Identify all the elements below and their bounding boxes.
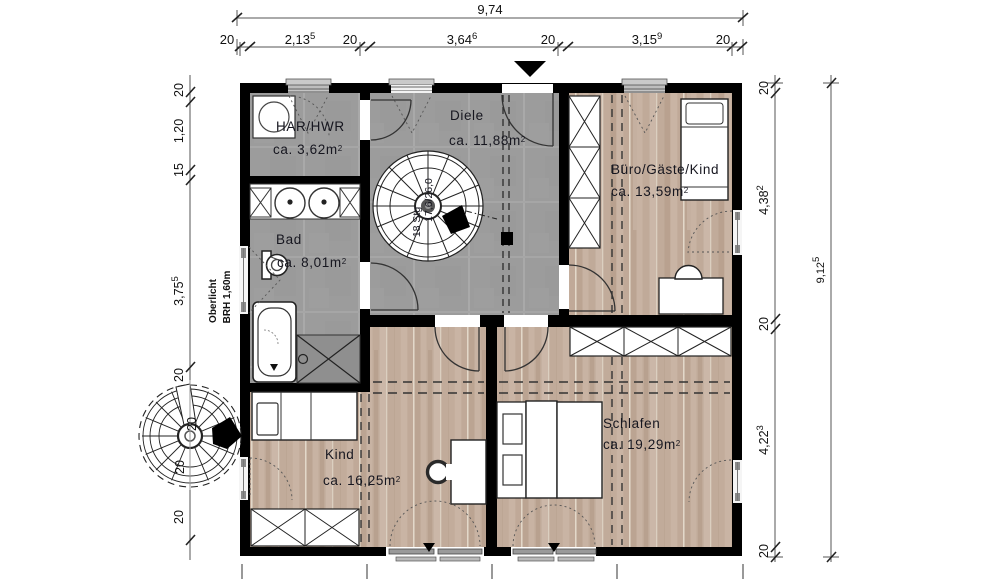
svg-text:ca. 13,59m2: ca. 13,59m2 xyxy=(611,184,689,199)
svg-text:ca. 19,29m2: ca. 19,29m2 xyxy=(603,437,681,452)
svg-text:BRH 1,60m: BRH 1,60m xyxy=(222,271,233,324)
svg-text:Bad: Bad xyxy=(276,232,302,247)
svg-text:20: 20 xyxy=(343,32,357,47)
svg-text:20: 20 xyxy=(757,544,771,558)
svg-text:20: 20 xyxy=(185,417,199,431)
svg-text:20: 20 xyxy=(173,460,187,474)
svg-text:ca. 8,01m2: ca. 8,01m2 xyxy=(277,255,347,270)
svg-text:20: 20 xyxy=(172,83,186,97)
svg-text:9,74: 9,74 xyxy=(477,2,502,17)
svg-text:20: 20 xyxy=(541,32,555,47)
svg-text:ca. 3,62m2: ca. 3,62m2 xyxy=(273,142,343,157)
svg-text:20: 20 xyxy=(757,81,771,95)
svg-text:ca. 11,88m2: ca. 11,88m2 xyxy=(449,133,526,148)
svg-text:Kind: Kind xyxy=(325,447,354,462)
svg-text:20: 20 xyxy=(220,32,234,47)
svg-text:20: 20 xyxy=(757,317,771,331)
svg-text:ca. 16,25m2: ca. 16,25m2 xyxy=(323,473,401,488)
svg-text:20: 20 xyxy=(716,32,730,47)
svg-text:17,6/26,0: 17,6/26,0 xyxy=(423,178,435,222)
svg-text:15: 15 xyxy=(172,163,186,177)
svg-text:HAR/HWR: HAR/HWR xyxy=(276,119,345,134)
svg-text:Schlafen: Schlafen xyxy=(603,416,660,431)
svg-text:18 Stg: 18 Stg xyxy=(411,207,423,238)
svg-text:20: 20 xyxy=(172,510,186,524)
svg-text:Büro/Gäste/Kind: Büro/Gäste/Kind xyxy=(611,162,719,177)
svg-text:20: 20 xyxy=(172,368,186,382)
svg-text:1,20: 1,20 xyxy=(172,119,186,143)
svg-text:Diele: Diele xyxy=(450,108,484,123)
svg-text:Oberlicht: Oberlicht xyxy=(208,278,219,323)
